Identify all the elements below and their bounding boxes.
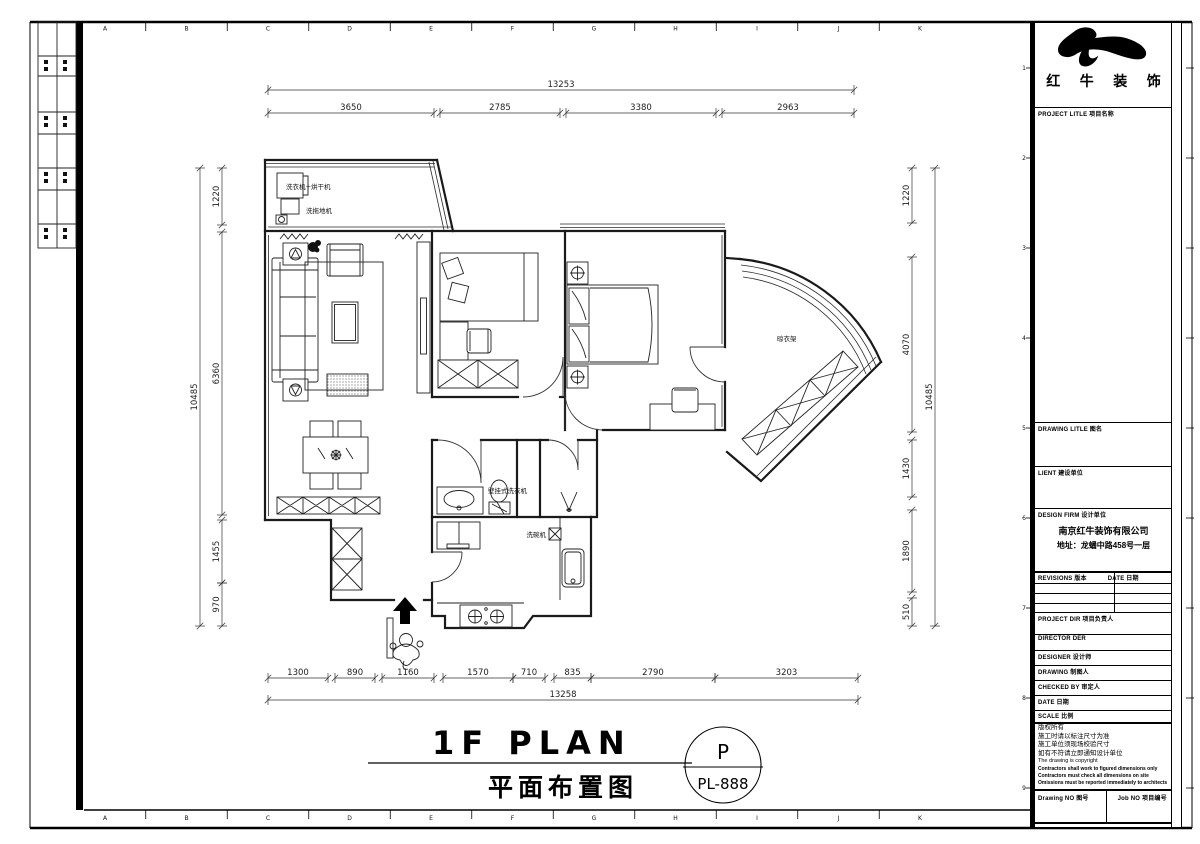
grid-number-right: 7 <box>1022 605 1026 612</box>
fold-mark-cell <box>44 67 48 71</box>
wardrobe-secondary <box>438 360 518 388</box>
plant-blob <box>308 240 321 252</box>
dimension-value: 1570 <box>467 668 489 678</box>
client-section: LIENT 建设单位 <box>1035 466 1172 509</box>
drawing-no-label: Drawing NO 图号 <box>1035 791 1089 802</box>
fold-mark-cell <box>44 60 48 64</box>
design-firm-address: 地址：龙蟠中路458号一层 <box>1035 540 1172 551</box>
stamp-number: PL-888 <box>697 775 748 793</box>
date-label: DATE 日期 <box>1035 695 1172 706</box>
dimension-value: 1160 <box>397 668 419 678</box>
copyright-line: 施工单位须现场校验尺寸 <box>1038 741 1172 750</box>
grid-letter-bottom: H <box>673 815 678 822</box>
fold-mark-cell <box>44 235 48 239</box>
grid-letter-bottom: I <box>756 815 758 822</box>
fold-mark-cell <box>44 179 48 183</box>
checked-by-section: CHECKED BY 审定人 <box>1035 680 1172 696</box>
dishwasher-label: 洗碗机 <box>527 530 547 539</box>
fold-mark-cell <box>63 60 67 64</box>
dimension-value: 835 <box>564 668 580 678</box>
dimension-value: 2963 <box>777 103 799 113</box>
stamp-letter: P <box>717 740 729 764</box>
dimension-value: 970 <box>212 596 222 612</box>
copyright-line: Omissions must be reported immediately t… <box>1038 780 1172 787</box>
dimension-value: 510 <box>902 604 912 620</box>
project-title-label: PROJECT LITLE 项目名称 <box>1035 107 1172 118</box>
sheet-title-en: 1F PLAN <box>432 724 632 762</box>
bed-secondary <box>440 253 538 321</box>
grid-number-right: 1 <box>1022 65 1026 72</box>
client-label: LIENT 建设单位 <box>1035 466 1172 477</box>
desk-secondary <box>440 322 491 360</box>
drawing-sheet: AABBCCDDEEFFGGHHIIJJKK123456789 <box>0 0 1200 844</box>
rug <box>327 374 368 396</box>
bathroom2-fixtures <box>561 492 577 512</box>
dimension-value: 1430 <box>902 458 912 480</box>
project-dir-section: PROJECT DIR 项目负责人 <box>1035 612 1172 635</box>
grid-letter-top: K <box>918 26 923 33</box>
bed-master <box>567 285 658 364</box>
dimension-value: 2790 <box>642 668 664 678</box>
design-firm-label: DESIGN FIRM 设计单位 <box>1035 508 1172 519</box>
fold-mark-cell <box>63 123 67 127</box>
person-figure <box>387 618 423 669</box>
fold-mark-cell <box>63 116 67 120</box>
copyright-line: Contractors must check all dimensions on… <box>1038 773 1172 780</box>
drawing-title-section: DRAWING LITLE 图名 <box>1035 422 1172 467</box>
grid-letter-bottom: D <box>347 815 352 822</box>
checked-by-label: CHECKED BY 审定人 <box>1035 680 1172 691</box>
fold-mark-cell <box>63 179 67 183</box>
dimension-value: 1300 <box>287 668 309 678</box>
kitchen-fixtures <box>437 517 584 627</box>
grid-letter-bottom: J <box>837 815 840 822</box>
dimension-value: 10485 <box>925 383 935 410</box>
fold-marks-strip <box>38 22 76 248</box>
fold-mark-cell <box>63 67 67 71</box>
fold-mark-cell <box>44 123 48 127</box>
dining-set <box>303 421 368 489</box>
grid-letter-top: B <box>184 26 188 33</box>
dimension-value: 710 <box>521 668 537 678</box>
grid-letter-bottom: G <box>592 815 597 822</box>
grid-letter-top: F <box>511 26 515 33</box>
tv-cabinet <box>417 242 430 393</box>
dimension-value: 6360 <box>212 363 222 385</box>
grid-number-right: 2 <box>1022 155 1026 162</box>
grid-letter-bottom: E <box>429 815 433 822</box>
revision-row <box>1035 593 1172 603</box>
drawing-section: DRAWING 制图人 <box>1035 665 1172 681</box>
drawing-title-label: DRAWING LITLE 图名 <box>1035 422 1172 433</box>
grid-reference-layer: AABBCCDDEEFFGGHHIIJJKK123456789 <box>44 22 1194 822</box>
floor-plan-svg: AABBCCDDEEFFGGHHIIJJKK123456789 <box>0 0 1200 844</box>
radiator-symbols <box>280 234 423 239</box>
project-dir-label: PROJECT DIR 项目负责人 <box>1035 612 1172 623</box>
grid-number-right: 5 <box>1022 425 1026 432</box>
grid-letter-bottom: F <box>511 815 515 822</box>
wall-washer-label: 壁挂式洗衣机 <box>488 486 528 495</box>
copyright-line: Contractors shall work to figured dimens… <box>1038 766 1172 773</box>
sofa <box>272 258 318 382</box>
entry-closet <box>332 528 362 590</box>
date-section: DATE 日期 <box>1035 695 1172 711</box>
designer-label: DESIGNER 设计师 <box>1035 650 1172 661</box>
grid-letter-top: A <box>103 26 108 33</box>
revisions-table: REVISIONS 版本 DATE 日期 <box>1035 571 1172 613</box>
fold-mark-cell <box>63 228 67 232</box>
grid-letter-top: C <box>266 26 270 33</box>
grid-number-right: 4 <box>1022 335 1026 342</box>
drawing-label: DRAWING 制图人 <box>1035 665 1172 676</box>
drying-rack-label: 晾衣架 <box>777 334 797 343</box>
grid-letter-bottom: A <box>103 815 108 822</box>
grid-letter-top: D <box>347 26 352 33</box>
copyright-line: 版权所有 <box>1038 724 1172 733</box>
coffee-table <box>332 302 358 343</box>
job-no-label: Job NO 项目编号 <box>1115 791 1167 802</box>
dimension-value: 4070 <box>902 334 912 356</box>
copyright-line: 施工时请以标注尺寸为准 <box>1038 733 1172 742</box>
laundry-appliances <box>276 173 308 224</box>
revisions-label: REVISIONS 版本 <box>1035 571 1087 582</box>
shoe-cabinet <box>277 497 380 514</box>
washer-dryer-label: 洗衣机+烘干机 <box>286 182 331 191</box>
grid-number-right: 6 <box>1022 515 1026 522</box>
copyright-line: The drawing is copyright <box>1038 758 1172 766</box>
grid-number-right: 3 <box>1022 245 1026 252</box>
drawing-no-divider <box>1106 791 1107 822</box>
revisions-divider <box>1114 571 1115 612</box>
drawing-no-section: Drawing NO 图号 Job NO 项目编号 <box>1035 789 1172 824</box>
grid-letter-bottom: C <box>266 815 270 822</box>
grid-letter-top: H <box>673 26 678 33</box>
sheet-title-cn: 平面布置图 <box>488 768 638 804</box>
design-firm-name: 南京红牛装饰有限公司 <box>1035 524 1172 537</box>
fold-mark-cell <box>44 172 48 176</box>
sheet-frame <box>30 22 1192 828</box>
grid-letter-top: E <box>429 26 433 33</box>
dimension-value: 1220 <box>902 185 912 207</box>
dimension-value: 13258 <box>549 690 576 700</box>
director-label: DIRECTOR DER <box>1035 634 1172 642</box>
grid-letter-top: I <box>756 26 758 33</box>
dimension-value: 1220 <box>212 186 222 208</box>
fold-mark-cell <box>44 116 48 120</box>
plan-labels: 洗衣机+烘干机 洗拖地机 晾衣架 壁挂式洗衣机 洗碗机 <box>286 182 797 539</box>
desk-master <box>650 388 715 430</box>
grid-letter-top: G <box>592 26 597 33</box>
bull-swoosh-logo-icon <box>1045 25 1163 71</box>
dimension-value: 3380 <box>630 103 652 113</box>
copyright-section: 版权所有 施工时请以标注尺寸为准 施工单位须现场校验尺寸 如有不符请立即通知设计… <box>1035 722 1172 791</box>
design-firm-section: DESIGN FIRM 设计单位 南京红牛装饰有限公司 地址：龙蟠中路458号一… <box>1035 508 1172 573</box>
fold-mark-cell <box>44 228 48 232</box>
dimension-value: 13253 <box>547 80 574 90</box>
scale-label: SCALE 比例 <box>1035 710 1172 720</box>
title-block: 红 牛 装 饰 PROJECT LITLE 项目名称 DRAWING LITLE… <box>1030 22 1182 828</box>
company-name: 红 牛 装 饰 <box>1035 71 1172 91</box>
frame-left-bar <box>76 22 83 810</box>
company-logo-section: 红 牛 装 饰 <box>1035 23 1172 108</box>
grid-letter-bottom: K <box>918 815 923 822</box>
copyright-line: 如有不符请立即通知设计单位 <box>1038 750 1172 759</box>
revisions-date-label: DATE 日期 <box>1105 571 1139 582</box>
dimension-value: 2785 <box>489 103 511 113</box>
bathroom-fixtures <box>437 480 510 514</box>
dimension-value: 1890 <box>902 540 912 562</box>
grid-number-right: 8 <box>1022 695 1026 702</box>
dimension-value: 3650 <box>340 103 362 113</box>
armchair <box>327 244 363 276</box>
revision-row <box>1035 583 1172 593</box>
entry-arrow <box>393 597 417 624</box>
dimension-value: 1455 <box>212 541 222 563</box>
grid-letter-bottom: B <box>184 815 188 822</box>
dimension-value: 3203 <box>776 668 798 678</box>
fold-mark-cell <box>63 235 67 239</box>
grid-number-right: 9 <box>1022 785 1026 792</box>
project-title-section: PROJECT LITLE 项目名称 <box>1035 107 1172 423</box>
director-section: DIRECTOR DER <box>1035 634 1172 651</box>
floor-washer-label: 洗拖地机 <box>306 206 333 215</box>
fold-mark-cell <box>63 172 67 176</box>
dimension-value: 10485 <box>190 383 200 410</box>
designer-section: DESIGNER 设计师 <box>1035 650 1172 666</box>
grid-letter-top: J <box>837 26 840 33</box>
dimension-value: 890 <box>347 668 363 678</box>
